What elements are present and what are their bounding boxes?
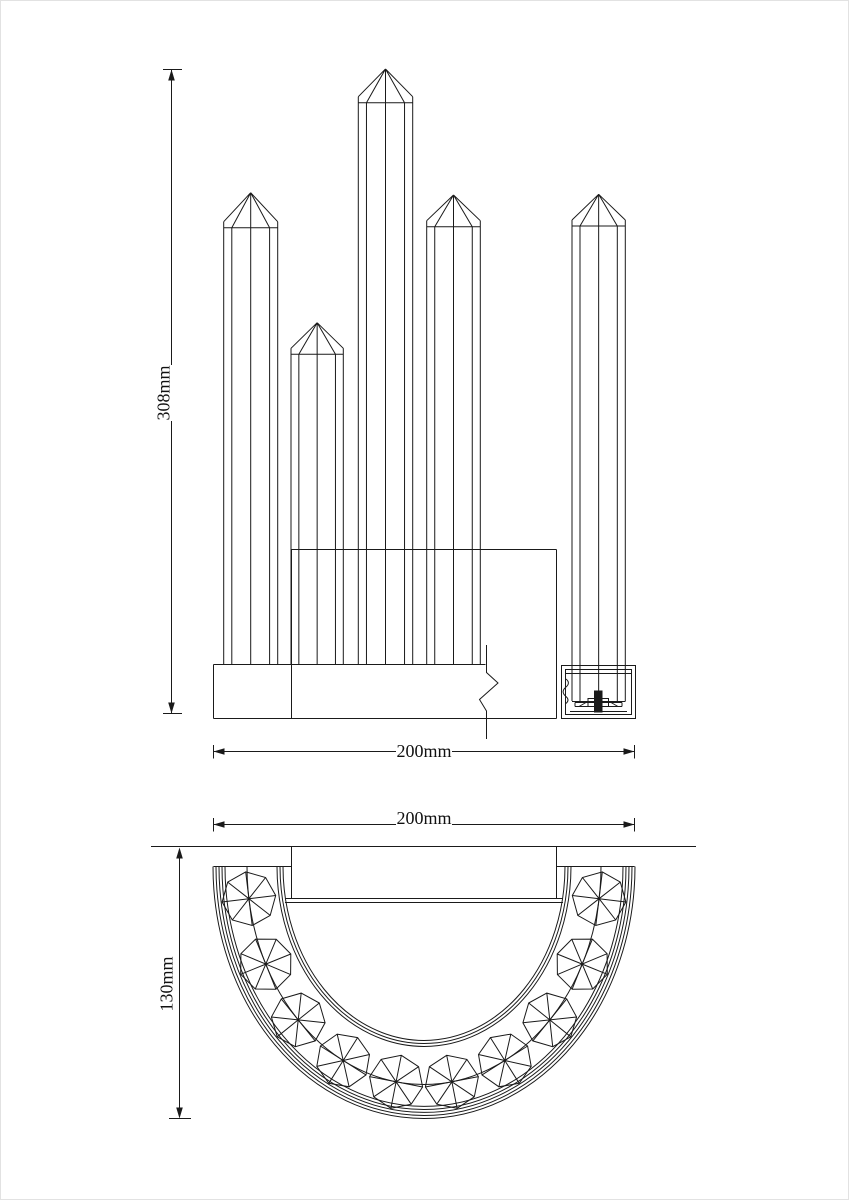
depth-dimension: 130mm bbox=[157, 848, 192, 1119]
crystal-rod-3 bbox=[358, 69, 412, 664]
crystal-rods bbox=[224, 69, 626, 701]
crystal-discs bbox=[222, 872, 626, 1108]
height-dimension-label-group: 308mm bbox=[154, 365, 174, 421]
crystal-disc-5 bbox=[370, 1055, 423, 1108]
depth-dimension-label-group: 130mm bbox=[157, 956, 177, 1012]
arrow-up-icon bbox=[176, 848, 183, 859]
mount-detail-box bbox=[562, 666, 636, 719]
arrow-right-icon bbox=[624, 748, 635, 754]
arrow-left-icon bbox=[214, 748, 225, 754]
band-outer-arc-1 bbox=[213, 867, 635, 1119]
technical-drawing-page: 308mm 200mm bbox=[0, 0, 849, 1200]
band-inner-arc-1 bbox=[283, 867, 565, 1041]
arrow-right-icon bbox=[624, 821, 635, 827]
front-width-dimension: 200mm bbox=[214, 741, 635, 761]
arrow-down-icon bbox=[168, 703, 175, 714]
crystal-disc-3 bbox=[271, 993, 325, 1047]
band-inner-arc-3 bbox=[277, 867, 571, 1047]
crystal-rod-1 bbox=[224, 193, 278, 664]
crystal-disc-10 bbox=[572, 872, 626, 926]
crystal-disc-8 bbox=[523, 993, 577, 1047]
arrow-left-icon bbox=[214, 821, 225, 827]
crystal-rod-4 bbox=[427, 195, 481, 664]
crystal-disc-6 bbox=[425, 1055, 478, 1108]
base-strip bbox=[214, 665, 557, 719]
bolt-shaft bbox=[595, 691, 603, 712]
crystal-sconce-drawing: 308mm 200mm bbox=[1, 1, 849, 1201]
backplate-section-rect bbox=[292, 550, 557, 719]
crystal-disc-7 bbox=[479, 1034, 532, 1087]
crystal-disc-4 bbox=[317, 1034, 370, 1087]
height-dimension: 308mm bbox=[154, 70, 183, 714]
depth-dimension-label: 130mm bbox=[157, 956, 177, 1011]
mount-plate-outline bbox=[285, 847, 563, 903]
top-view: 200mm 130mm bbox=[151, 808, 696, 1119]
crystal-rod-5 bbox=[572, 194, 625, 701]
top-width-dimension-label: 200mm bbox=[396, 808, 451, 828]
crystal-disc-9 bbox=[557, 939, 607, 989]
crystal-disc-2 bbox=[241, 939, 291, 989]
arrow-up-icon bbox=[168, 70, 175, 81]
front-width-dimension-label: 200mm bbox=[396, 741, 451, 761]
height-dimension-label: 308mm bbox=[154, 365, 174, 420]
front-view: 308mm 200mm bbox=[154, 69, 636, 761]
crystal-rod-2 bbox=[291, 323, 343, 664]
break-line-zigzag bbox=[480, 645, 499, 739]
arrow-down-icon bbox=[176, 1108, 183, 1119]
crystal-chain-arc bbox=[247, 867, 601, 1085]
semicircular-band bbox=[213, 867, 635, 1119]
top-width-dimension: 200mm bbox=[214, 808, 635, 832]
crystal-disc-1 bbox=[222, 872, 276, 926]
